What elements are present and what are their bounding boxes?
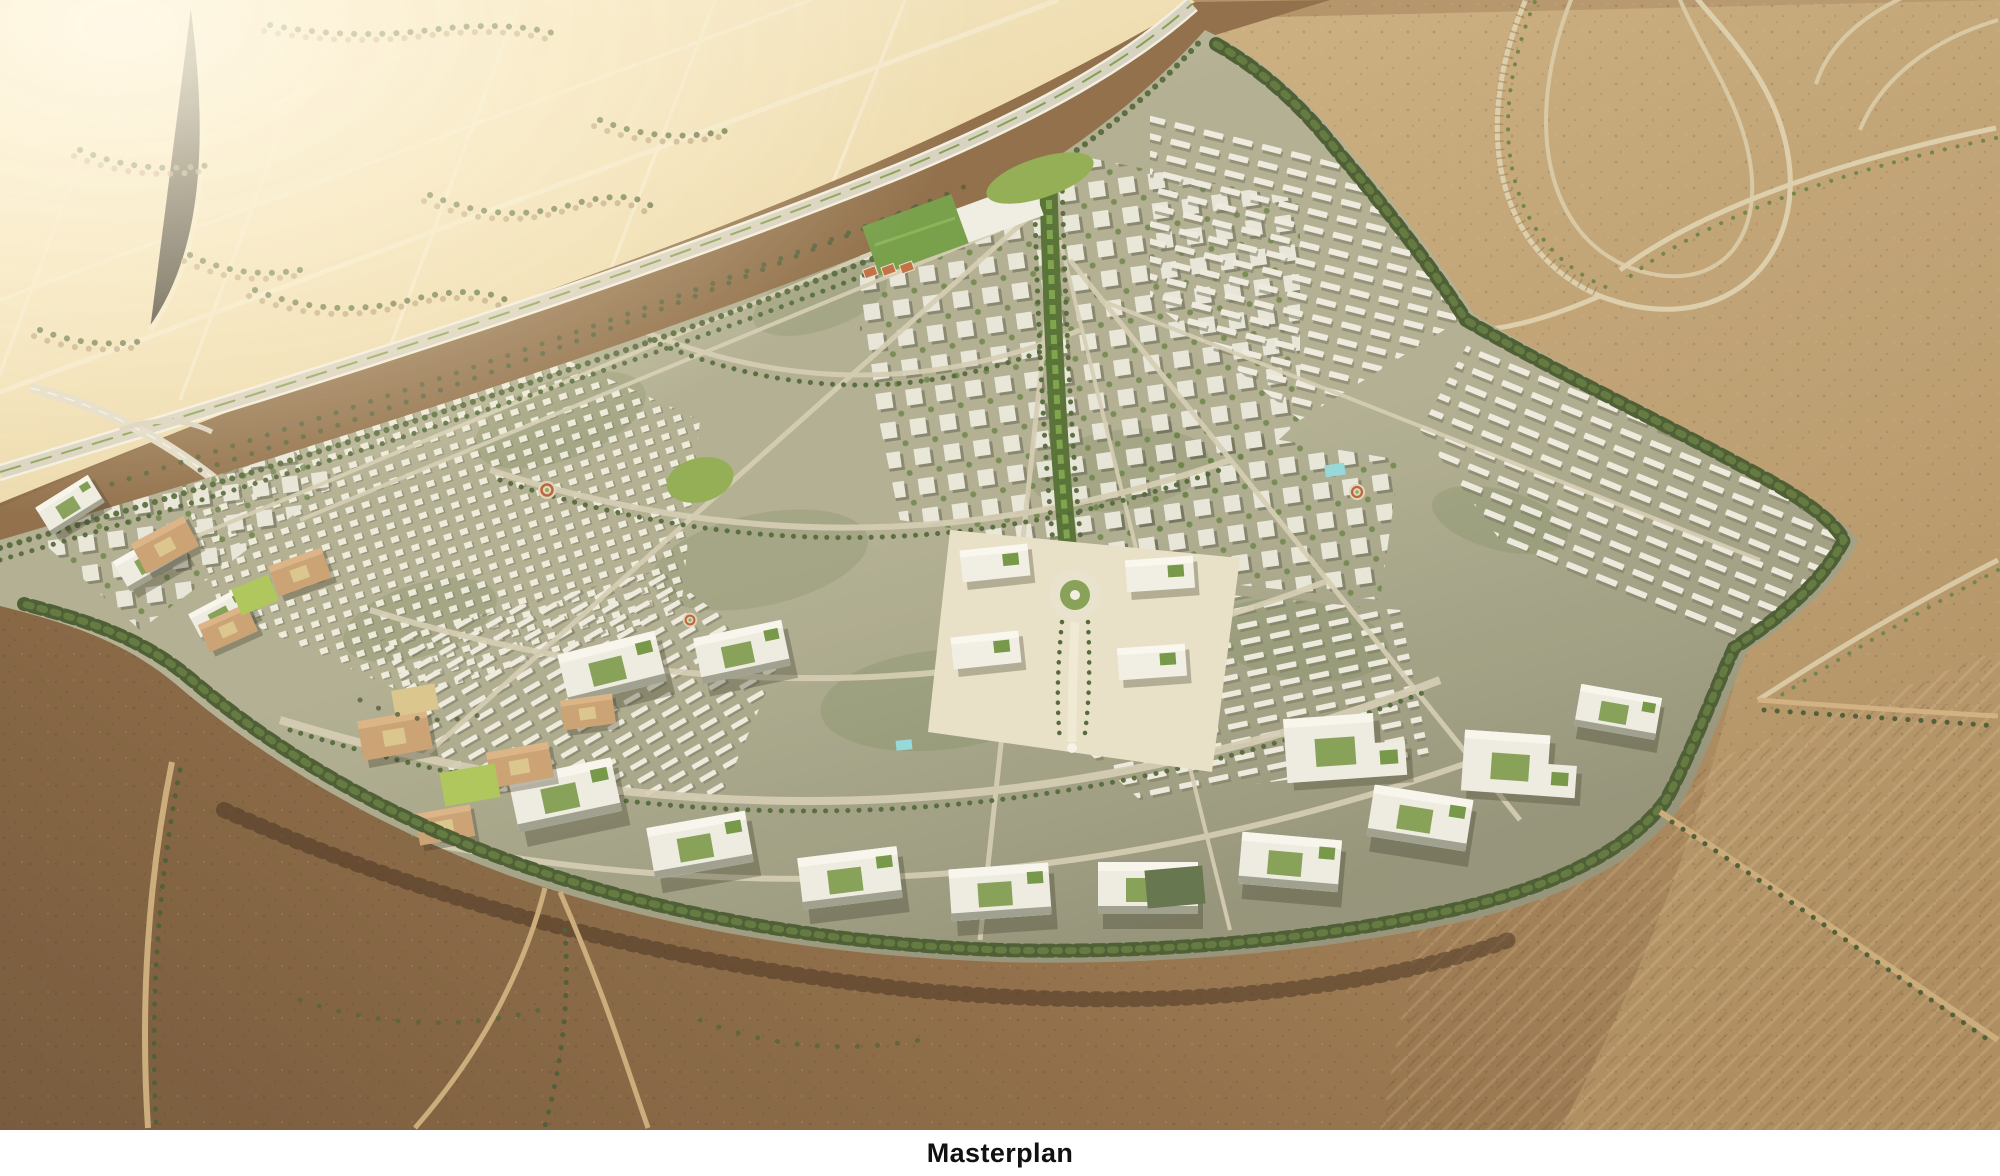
caption-bar: Masterplan: [0, 1130, 2000, 1176]
warm-haze: [0, 0, 2000, 1130]
aerial-render-svg: [0, 0, 2000, 1130]
masterplan-figure: Masterplan: [0, 0, 2000, 1176]
caption-text: Masterplan: [927, 1138, 1074, 1169]
aerial-render: [0, 0, 2000, 1130]
